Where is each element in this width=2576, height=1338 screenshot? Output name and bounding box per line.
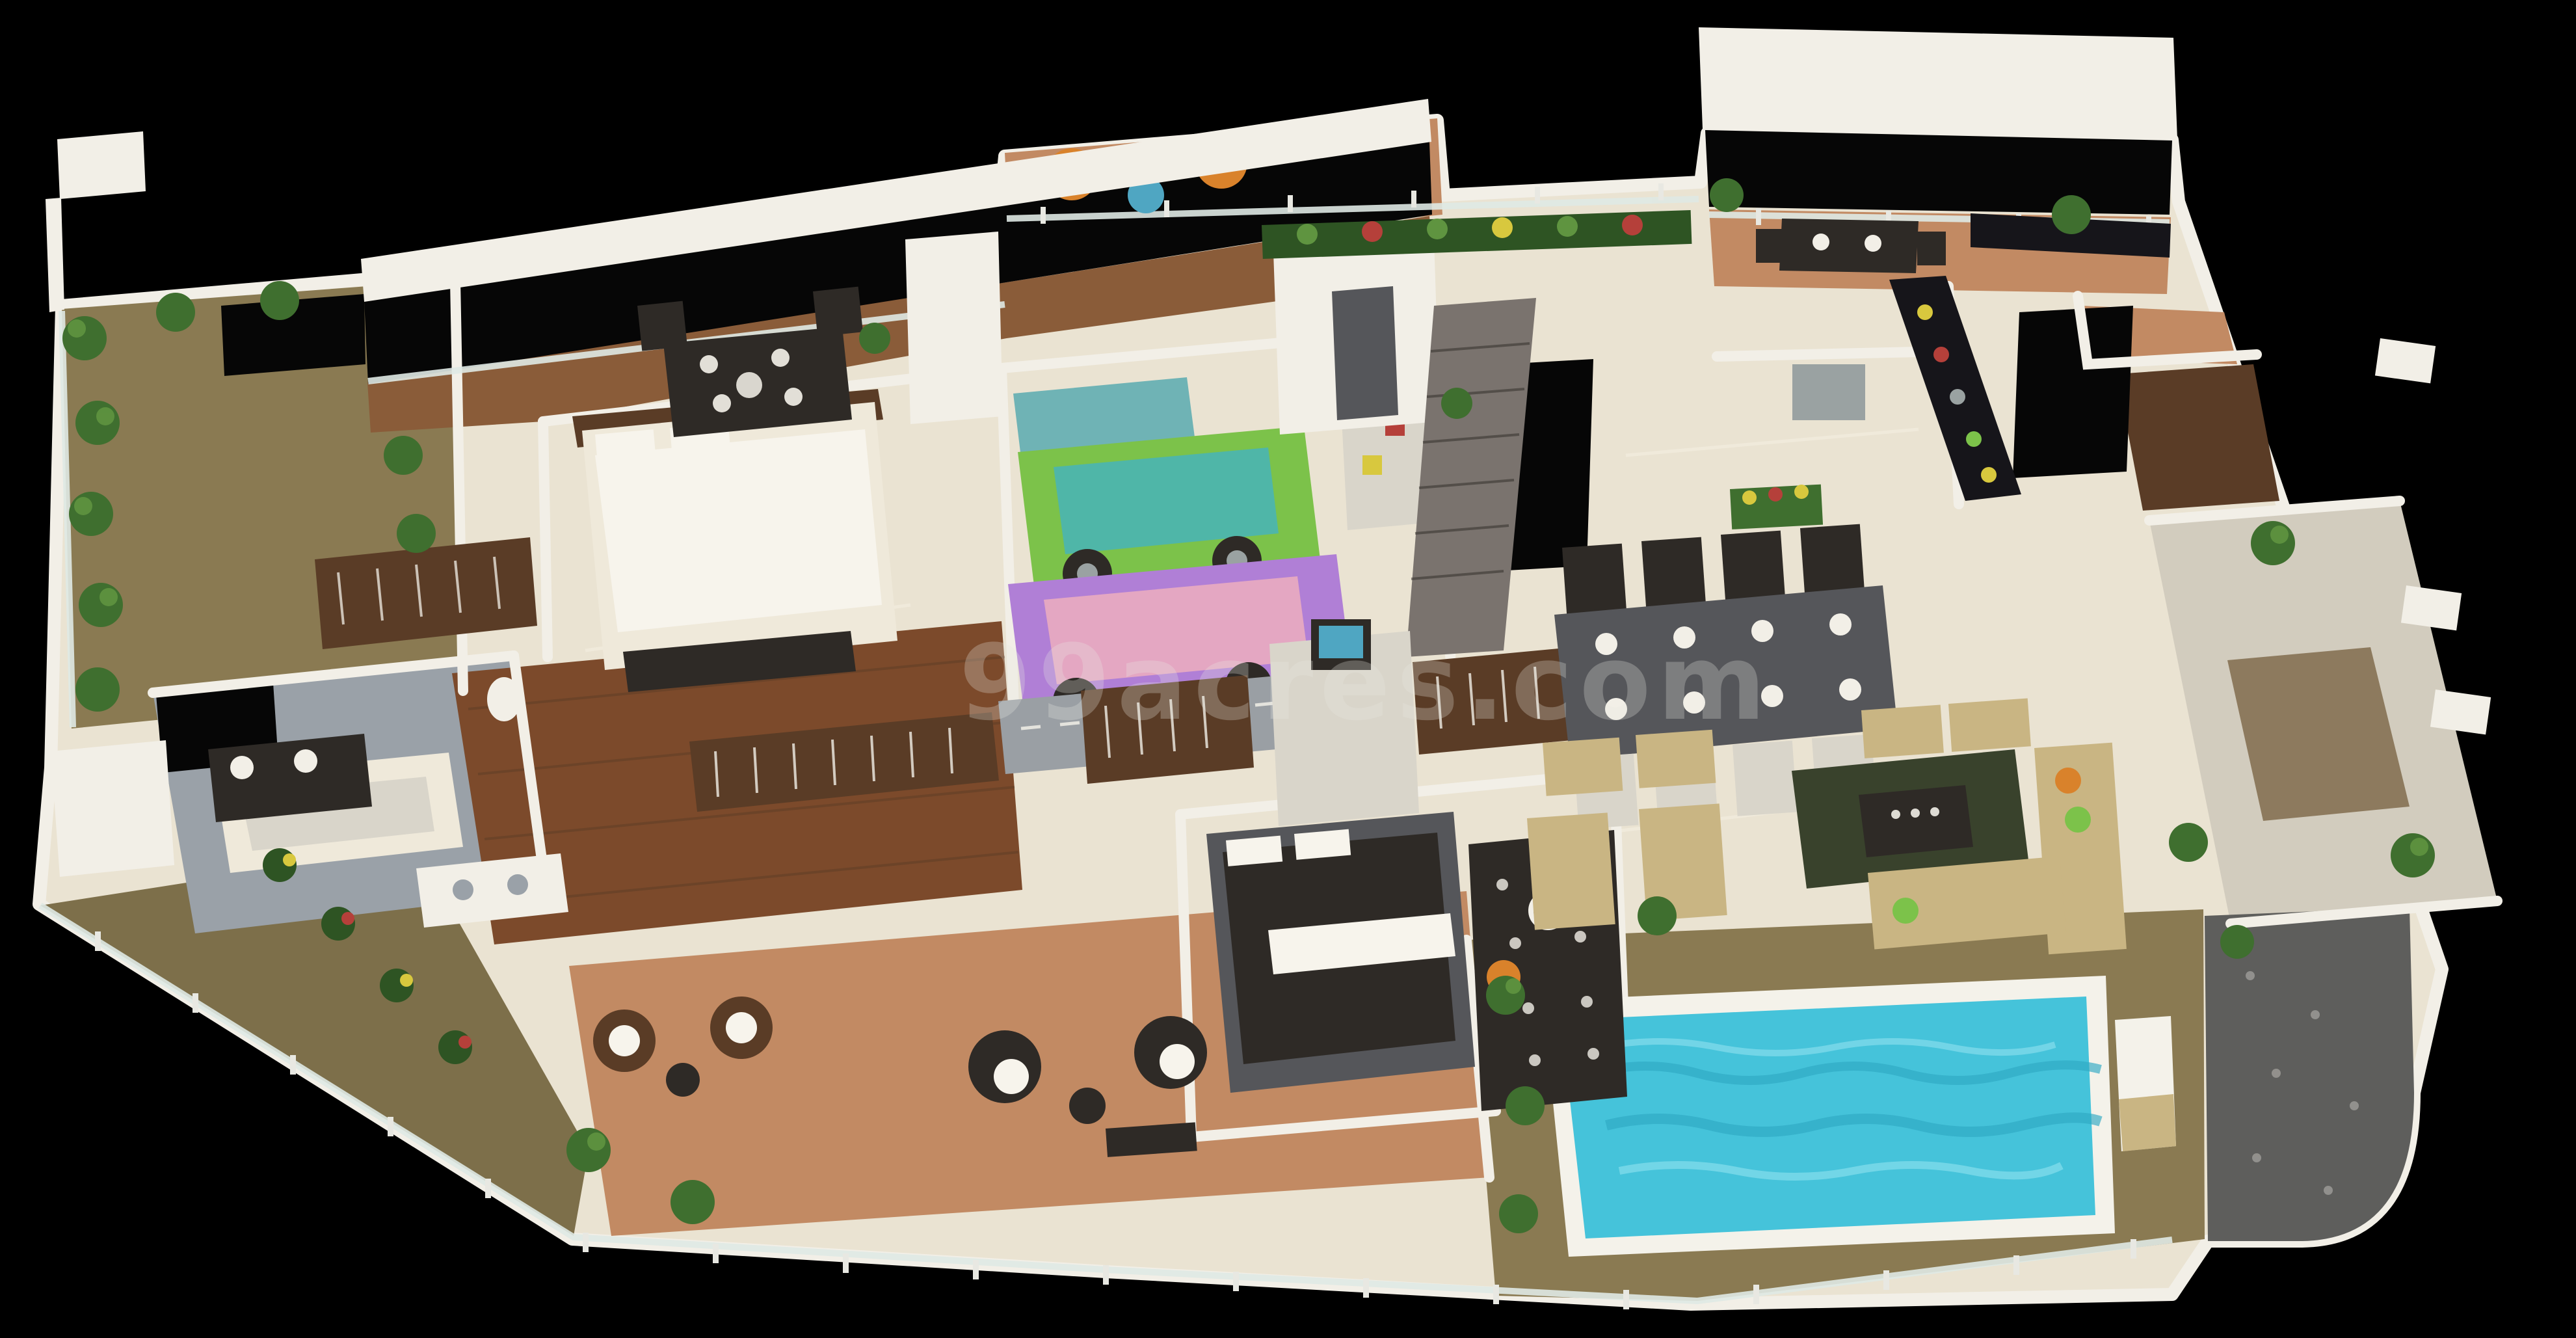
dining-flower-box bbox=[1730, 485, 1823, 529]
kitchen-inner-wall bbox=[1717, 351, 1948, 356]
floorplan-render: 99acres.com bbox=[0, 0, 2576, 1338]
penthouse-3d-floorplan: 99acres.com bbox=[0, 0, 2576, 1338]
sun-lounger bbox=[2115, 1016, 2176, 1151]
elevator-door bbox=[1332, 286, 1398, 420]
console-lamp-a bbox=[230, 756, 254, 779]
wall-bed1-left bbox=[543, 421, 548, 657]
parapet-far-left-top bbox=[57, 131, 146, 199]
vanity-basin-b bbox=[507, 874, 528, 895]
vanity-basin-a bbox=[453, 879, 473, 900]
hall-plant bbox=[1638, 896, 1677, 935]
toilet bbox=[487, 677, 521, 721]
terrace-chair-a bbox=[637, 301, 687, 351]
kitchen-terrace-dining bbox=[1756, 219, 1946, 273]
bed2-pillow-a bbox=[1226, 836, 1282, 866]
terrace-chair-b bbox=[813, 287, 863, 337]
media-room-floor bbox=[2117, 364, 2279, 511]
bed1-duvet bbox=[595, 429, 882, 632]
deck-console bbox=[208, 734, 372, 822]
swimming-pool bbox=[1543, 976, 2176, 1257]
console-lamp-b bbox=[294, 749, 317, 773]
core-pillar-west bbox=[905, 232, 1003, 424]
kitchen-appliance bbox=[1792, 364, 1865, 420]
kitchen-open-void bbox=[2013, 306, 2133, 478]
bed2-pillow-b bbox=[1294, 829, 1351, 860]
roof-slab-kitchen bbox=[1699, 27, 2177, 139]
watermark-text: 99acres.com bbox=[959, 622, 1772, 743]
under-roof-void-kitchen bbox=[1705, 130, 2172, 215]
daybed bbox=[51, 740, 174, 877]
chandelier-glow bbox=[736, 372, 762, 398]
coffee-table bbox=[1859, 785, 1973, 857]
bed1-pillow-a bbox=[595, 429, 656, 462]
